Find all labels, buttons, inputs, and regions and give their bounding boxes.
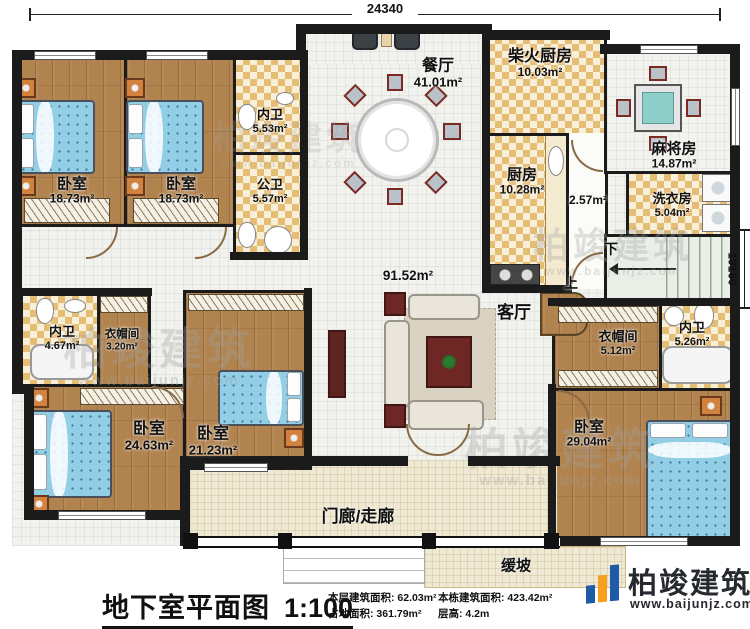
room-label-laundry: 洗衣房 5.04m² — [652, 192, 691, 220]
room-area-living: 91.52m² — [383, 268, 433, 284]
sofa — [384, 320, 410, 408]
plan-title-text: 地下室平面图 — [102, 593, 270, 623]
side-table — [384, 404, 406, 428]
room-name: 衣帽间 — [105, 329, 140, 342]
side-table — [384, 292, 406, 316]
stove — [490, 264, 540, 285]
room-label-bedroom-bl1: 卧室 24.63m² — [125, 420, 173, 453]
wall — [304, 288, 312, 470]
logo-url: www.baijunjz.com — [630, 597, 750, 611]
stairs-up-label: 上 — [564, 275, 578, 291]
window — [640, 45, 698, 54]
stat-row: 层高: 4.2m — [438, 606, 552, 622]
room-name: 内卫 — [49, 325, 75, 340]
wardrobe — [558, 306, 658, 323]
porch-steps — [283, 546, 425, 584]
stat-label: 层高: — [438, 608, 463, 620]
stats-column-1: 本层建筑面积: 62.03m² 占地面积: 361.79m² — [328, 590, 437, 623]
room-area: 24.63m² — [125, 439, 173, 454]
shower-basin — [264, 226, 292, 254]
room-area: 14.87m² — [652, 158, 697, 172]
room-area: 5.12m² — [601, 345, 636, 358]
bed-sheet — [266, 372, 282, 424]
room-porch — [183, 460, 557, 544]
porch-railing — [186, 536, 560, 548]
room-label-hallway: 2.57m² — [569, 194, 607, 208]
room-area: 5.57m² — [253, 193, 288, 206]
room-name: 卧室 — [197, 425, 229, 443]
wall — [482, 30, 610, 40]
plant — [442, 355, 456, 369]
dimension-tick — [719, 8, 721, 21]
room-name: 内卫 — [257, 108, 283, 123]
sink — [64, 299, 86, 313]
pillow — [128, 138, 143, 168]
toilet — [36, 298, 54, 324]
room-label-mahjong: 麻将房 14.87m² — [651, 140, 696, 171]
stat-row: 占地面积: 361.79m² — [328, 606, 437, 622]
window — [146, 51, 208, 60]
wall — [468, 456, 560, 466]
bed-sheet — [50, 412, 68, 496]
bed — [646, 420, 734, 540]
dining-chair — [387, 74, 403, 91]
stair-arrow-head — [609, 263, 618, 275]
porch-post — [422, 533, 436, 549]
wall — [230, 252, 308, 260]
room-name: 餐厅 — [422, 57, 454, 75]
stairs-down-label: 下 — [604, 241, 618, 257]
room-label-neiwei-top: 内卫 5.53m² — [253, 108, 288, 136]
room-name: 卧室 — [166, 175, 196, 192]
stat-label: 占地面积: — [328, 608, 374, 620]
pillow — [287, 398, 301, 422]
dimension-top-value: 24340 — [352, 1, 418, 16]
wall — [300, 52, 308, 258]
stairs-up-text: 上 — [564, 275, 578, 291]
stat-value: 62.03m² — [397, 592, 436, 604]
room-area: 10.28m² — [500, 184, 545, 198]
dimension-right-value: 19160 — [726, 252, 740, 285]
wall — [482, 285, 572, 293]
wardrobe — [558, 370, 658, 387]
pillow — [32, 414, 47, 450]
mahjong-chair — [616, 99, 631, 117]
wall — [482, 30, 490, 292]
nightstand — [125, 78, 145, 98]
room-area: 18.73m² — [159, 193, 204, 207]
room-name: 内卫 — [679, 321, 705, 336]
pillow — [32, 454, 47, 490]
wall — [12, 288, 152, 296]
room-area: 5.04m² — [655, 207, 690, 220]
room-label-porch: 门廊/走廊 — [322, 507, 395, 527]
room-label-gongwei: 公卫 5.57m² — [253, 178, 288, 206]
room-name: 衣帽间 — [598, 330, 637, 345]
dimension-line-right — [744, 230, 745, 308]
bed-sheet — [648, 442, 732, 458]
side-table — [381, 32, 392, 47]
dining-table-ring — [385, 128, 409, 152]
room-name: 卧室 — [57, 175, 87, 192]
room-area: 10.03m² — [518, 66, 563, 80]
wall — [24, 384, 34, 520]
wall — [548, 384, 556, 546]
wardrobe — [188, 294, 304, 311]
dimension-tick — [738, 229, 750, 231]
room-area: 29.04m² — [567, 436, 612, 450]
room-name: 门廊/走廊 — [322, 507, 395, 527]
window — [58, 511, 146, 520]
room-label-neiwei-right: 内卫 5.26m² — [675, 321, 710, 349]
room-label-cloak-right: 衣帽间 5.12m² — [598, 330, 637, 358]
room-area: 5.26m² — [675, 336, 710, 349]
room-label-ramp: 缓坡 — [501, 557, 531, 574]
room-label-neiwei-left: 内卫 4.67m² — [45, 325, 80, 353]
plan-title: 地下室平面图1:100 — [102, 586, 353, 629]
mahjong-chair — [649, 66, 667, 81]
room-area: 41.01m² — [414, 76, 462, 91]
footer: 地下室平面图1:100 本层建筑面积: 62.03m² 占地面积: 361.79… — [0, 584, 750, 629]
nightstand — [284, 428, 304, 448]
mahjong-table-top — [642, 92, 674, 124]
sofa — [408, 294, 480, 320]
room-label-bedroom-tl2: 卧室 18.73m² — [159, 175, 204, 206]
window — [204, 463, 268, 472]
stats-column-2: 本栋建筑面积: 423.42m² 层高: 4.2m — [438, 590, 552, 623]
stat-label: 本栋建筑面积: — [438, 592, 505, 604]
porch-post — [544, 533, 559, 549]
company-logo: 柏竣建筑 www.baijunjz.com — [584, 560, 750, 628]
pillow — [692, 423, 728, 438]
logo-icon — [584, 560, 624, 608]
room-label-living: 客厅 — [497, 303, 531, 323]
dining-chair — [331, 123, 349, 140]
room-area: 5.53m² — [253, 123, 288, 136]
bathtub — [662, 346, 734, 384]
stair-arrow-line — [618, 268, 676, 270]
room-label-firewood-kitchen: 柴火厨房 10.03m² — [508, 48, 572, 80]
window — [34, 51, 96, 60]
bed-sheet — [36, 102, 54, 172]
room-label-bedroom-tl1: 卧室 18.73m² — [50, 175, 95, 206]
room-name: 厨房 — [507, 166, 537, 183]
stat-value: 423.42m² — [507, 592, 552, 604]
pillow — [287, 372, 301, 396]
dimension-tick — [29, 8, 31, 21]
room-name: 柴火厨房 — [508, 48, 572, 66]
porch-post — [278, 533, 292, 549]
room-area: 91.52m² — [383, 268, 433, 284]
room-area: 21.23m² — [189, 444, 237, 459]
room-name: 公卫 — [257, 178, 283, 193]
tv-cabinet — [328, 330, 346, 398]
floor-plan-page: 柏竣建筑 www.baijunjz.com 柏竣建筑 www.baijunjz.… — [0, 0, 750, 629]
wardrobe — [100, 296, 148, 313]
window — [600, 537, 688, 546]
room-name: 麻将房 — [651, 140, 696, 157]
logo-name: 柏竣建筑 — [628, 560, 750, 602]
kitchen-sink — [548, 146, 564, 176]
mahjong-chair — [686, 99, 701, 117]
toilet — [238, 222, 256, 248]
bed-sheet — [145, 102, 163, 172]
room-area: 4.67m² — [45, 340, 80, 353]
wall — [548, 298, 740, 306]
room-name: 缓坡 — [501, 557, 531, 574]
dining-chair — [387, 188, 403, 205]
nightstand — [700, 396, 722, 416]
stat-value: 4.2m — [465, 608, 489, 620]
stat-row: 本层建筑面积: 62.03m² — [328, 590, 437, 606]
nightstand — [125, 176, 145, 196]
room-label-kitchen: 厨房 10.28m² — [500, 166, 545, 197]
room-area: 3.20m² — [106, 342, 138, 354]
stat-value: 361.79m² — [376, 608, 421, 620]
room-label-cloak-left: 衣帽间 3.20m² — [105, 329, 140, 354]
stat-row: 本栋建筑面积: 423.42m² — [438, 590, 552, 606]
window — [731, 88, 740, 146]
room-name: 卧室 — [133, 420, 165, 438]
room-area: 2.57m² — [569, 194, 607, 208]
sink — [276, 92, 294, 105]
wall — [296, 24, 492, 34]
room-name: 卧室 — [574, 418, 604, 435]
stairs-down-text: 下 — [604, 241, 618, 257]
room-label-dining: 餐厅 41.01m² — [414, 57, 462, 90]
porch-post — [183, 533, 198, 549]
stair-treads — [666, 237, 734, 303]
dining-chair — [443, 123, 461, 140]
stat-label: 本层建筑面积: — [328, 592, 395, 604]
wall — [12, 50, 22, 392]
pillow — [650, 423, 686, 438]
room-area: 18.73m² — [50, 193, 95, 207]
room-name: 客厅 — [497, 303, 531, 323]
room-label-bedroom-bl2: 卧室 21.23m² — [189, 425, 237, 458]
room-name: 洗衣房 — [652, 192, 691, 207]
room-label-bedroom-br: 卧室 29.04m² — [567, 418, 612, 449]
dimension-tick — [738, 307, 750, 309]
pillow — [128, 104, 143, 134]
